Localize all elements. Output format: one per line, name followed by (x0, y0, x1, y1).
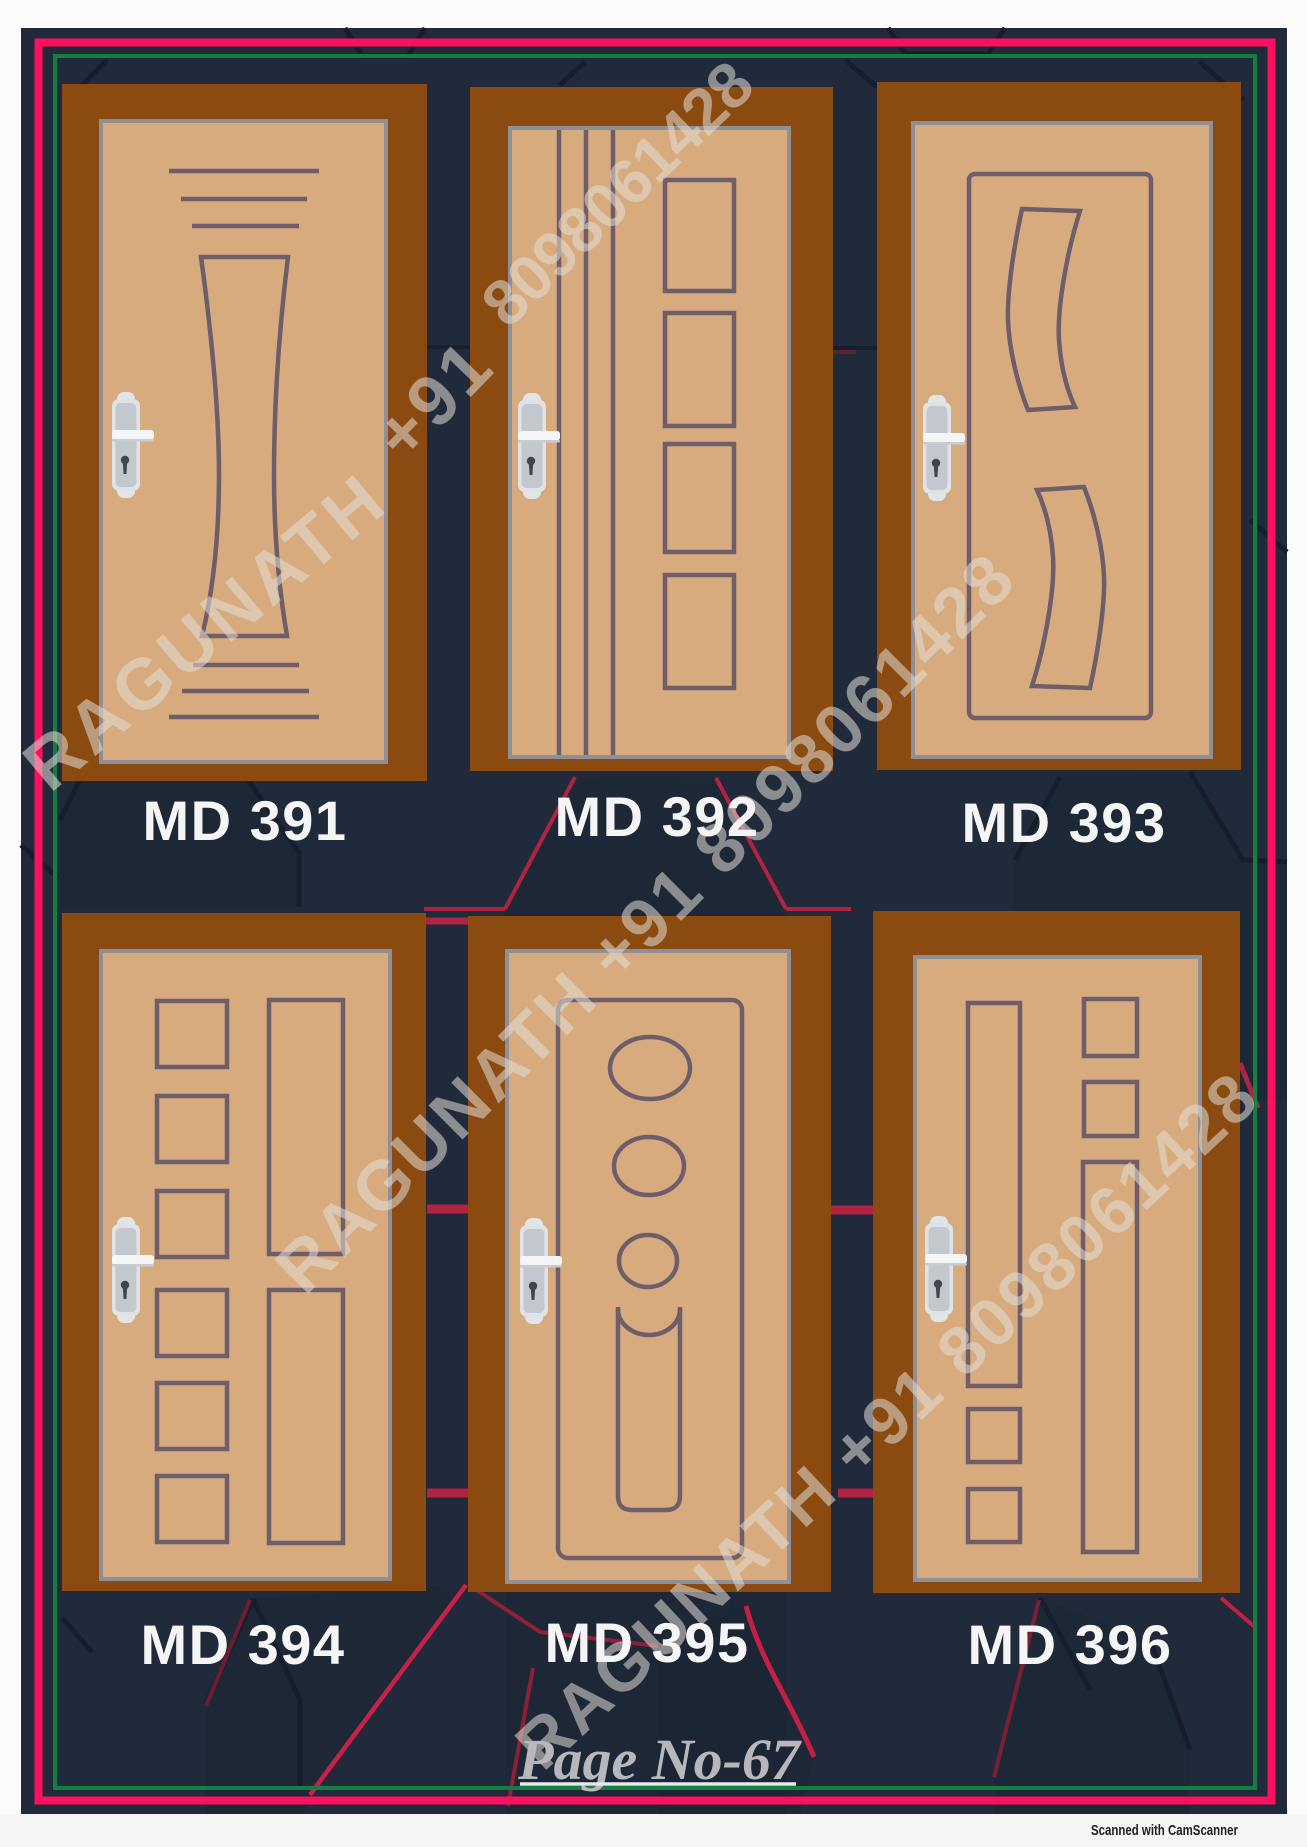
svg-text:MD 394: MD 394 (140, 1613, 345, 1676)
svg-text:MD 392: MD 392 (554, 785, 759, 848)
svg-text:MD 395: MD 395 (544, 1611, 749, 1674)
svg-text:MD 391: MD 391 (142, 789, 347, 852)
svg-text:Scanned with CamScanner: Scanned with CamScanner (1091, 1822, 1238, 1839)
svg-text:MD 396: MD 396 (967, 1613, 1172, 1676)
svg-text:MD 393: MD 393 (961, 791, 1166, 854)
